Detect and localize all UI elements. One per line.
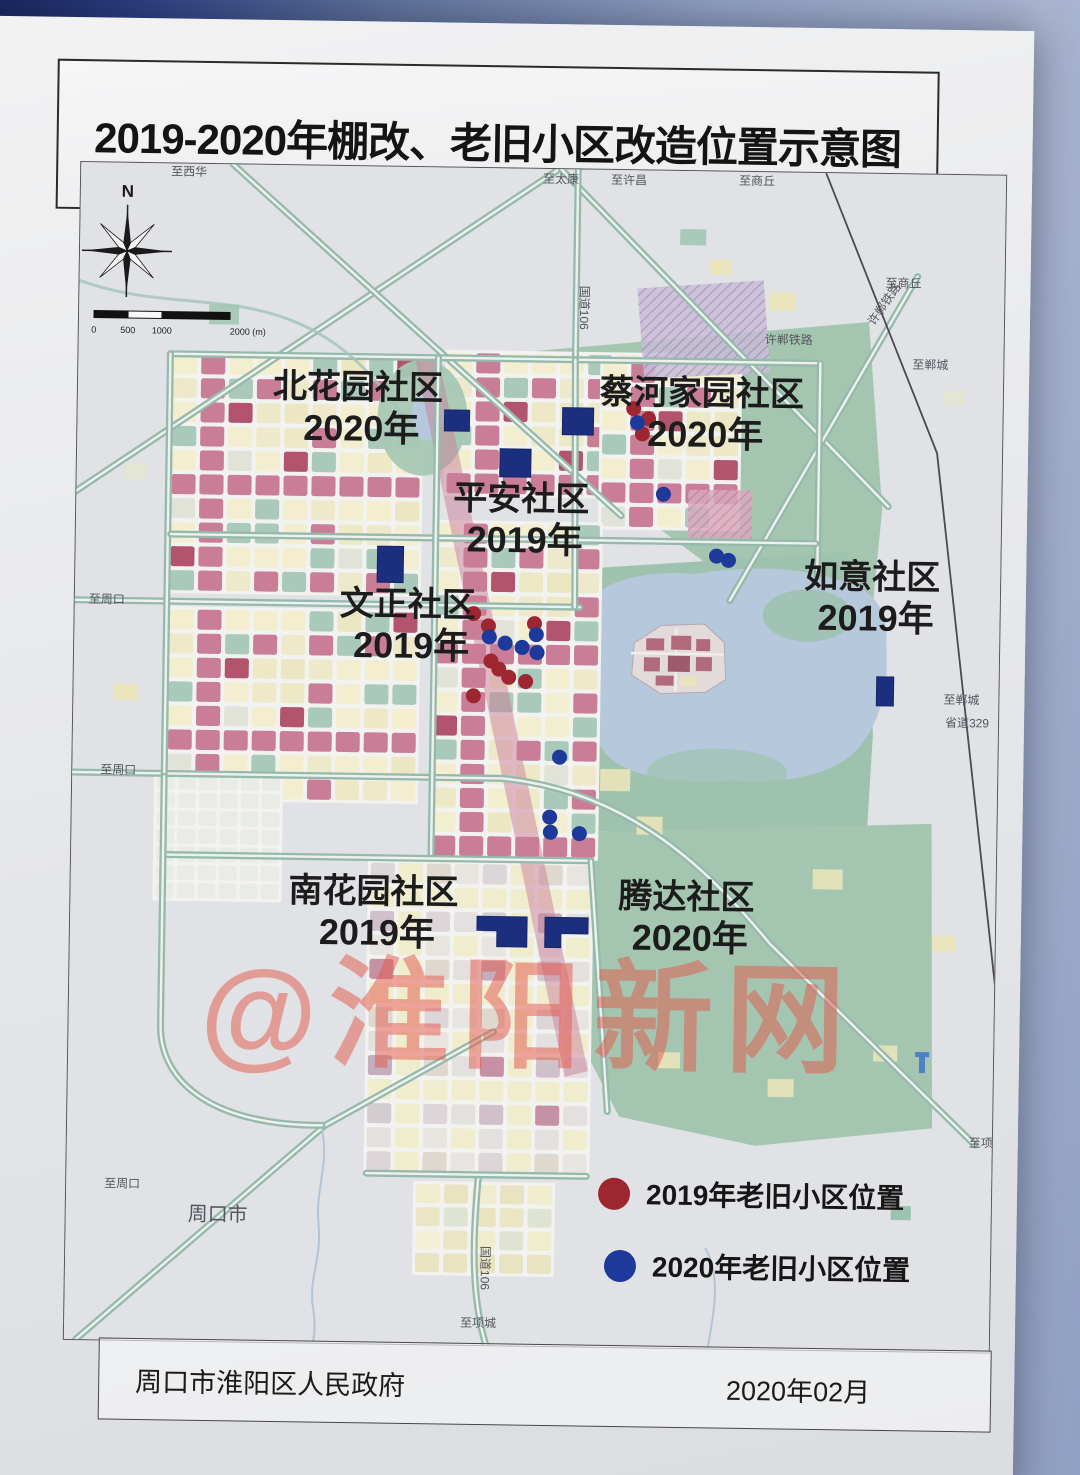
city-block bbox=[444, 1184, 468, 1203]
road-label: 至周口 bbox=[89, 592, 125, 607]
city-block bbox=[545, 693, 569, 713]
city-block bbox=[168, 729, 192, 749]
city-block bbox=[499, 1254, 523, 1273]
city-block bbox=[507, 1129, 531, 1149]
city-block bbox=[281, 635, 305, 655]
community-name: 腾达社区 bbox=[618, 877, 755, 917]
city-block bbox=[517, 692, 541, 712]
city-block bbox=[487, 836, 511, 856]
road-label: 至项城 bbox=[460, 1316, 496, 1331]
city-block bbox=[227, 499, 251, 519]
renovation-area bbox=[562, 408, 593, 436]
city-block bbox=[392, 733, 416, 753]
city-block bbox=[392, 709, 416, 729]
city-block bbox=[219, 829, 237, 844]
city-block bbox=[499, 1231, 523, 1250]
city-block bbox=[415, 1230, 439, 1249]
city-block bbox=[630, 459, 654, 479]
city-block bbox=[504, 378, 528, 398]
city-block bbox=[198, 546, 222, 566]
city-block bbox=[172, 450, 196, 470]
city-block bbox=[544, 765, 568, 785]
city-block bbox=[714, 460, 738, 480]
city-block bbox=[566, 890, 590, 910]
renovation-area bbox=[876, 677, 893, 706]
city-block bbox=[451, 1128, 475, 1148]
city-block bbox=[169, 657, 193, 677]
city-block bbox=[340, 452, 364, 472]
city-block bbox=[482, 888, 506, 908]
city-block bbox=[308, 707, 332, 727]
city-block bbox=[309, 659, 333, 679]
city-block bbox=[546, 645, 570, 665]
city-block bbox=[479, 1105, 503, 1125]
renovation-area bbox=[444, 410, 469, 431]
city-block bbox=[527, 1255, 551, 1274]
community-year: 2019年 bbox=[466, 518, 583, 561]
city-block bbox=[491, 572, 515, 592]
city-block bbox=[226, 571, 250, 591]
community-year: 2019年 bbox=[353, 624, 470, 667]
city-block bbox=[572, 765, 596, 785]
city-block bbox=[528, 1186, 552, 1205]
city-block bbox=[225, 610, 249, 630]
city-block bbox=[262, 794, 280, 809]
city-block bbox=[363, 780, 387, 800]
scale-tick: 1000 bbox=[152, 325, 172, 335]
city-block bbox=[478, 1153, 502, 1173]
city-block bbox=[567, 866, 591, 886]
city-block bbox=[280, 707, 304, 727]
city-block bbox=[339, 500, 363, 520]
scale-segment bbox=[128, 311, 162, 319]
road-label: 至郸城 bbox=[912, 358, 948, 373]
city-block bbox=[254, 571, 278, 591]
city-block bbox=[177, 811, 195, 826]
city-block bbox=[394, 1151, 418, 1171]
city-block bbox=[308, 683, 332, 703]
city-block bbox=[196, 730, 220, 750]
city-block bbox=[574, 621, 598, 641]
city-block bbox=[310, 548, 334, 568]
city-block bbox=[368, 453, 392, 473]
city-block bbox=[198, 811, 216, 826]
city-block bbox=[364, 708, 388, 728]
city-block bbox=[256, 403, 280, 423]
city-block bbox=[225, 658, 249, 678]
city-block bbox=[283, 476, 307, 496]
city-block bbox=[173, 378, 197, 398]
city-block bbox=[260, 884, 278, 899]
date-label: 2020年02月 bbox=[726, 1368, 871, 1409]
city-block bbox=[255, 475, 279, 495]
city-block bbox=[283, 500, 307, 520]
city-block bbox=[546, 669, 570, 689]
footer-box: 周口市淮阳区人民政府 2020年02月 bbox=[98, 1337, 992, 1432]
photo-background: 2019-2020年棚改、老旧小区改造位置示意图 bbox=[0, 0, 1080, 1475]
city-block bbox=[535, 1130, 559, 1150]
city-block bbox=[534, 1154, 558, 1174]
city-block bbox=[475, 449, 499, 469]
city-block bbox=[483, 864, 507, 884]
city-block bbox=[454, 912, 478, 932]
road-label: 至周口 bbox=[104, 1176, 140, 1191]
city-block bbox=[364, 732, 388, 752]
city-block bbox=[339, 476, 363, 496]
city-block bbox=[391, 781, 415, 801]
city-block bbox=[228, 403, 252, 423]
community-name: 蔡河家园社区 bbox=[599, 373, 804, 414]
city-block bbox=[519, 572, 543, 592]
city-block bbox=[198, 829, 216, 844]
city-block bbox=[367, 501, 391, 521]
road-label: 国道106 bbox=[577, 286, 592, 331]
city-block bbox=[261, 812, 279, 827]
road-label: 至太康 bbox=[543, 171, 579, 187]
city-block bbox=[657, 507, 681, 527]
city-block bbox=[171, 474, 195, 494]
city-block bbox=[309, 611, 333, 631]
city-block bbox=[451, 1104, 475, 1124]
city-block bbox=[240, 830, 258, 845]
scale-tick: 0 bbox=[91, 324, 96, 334]
city-block bbox=[571, 838, 595, 858]
city-block bbox=[177, 829, 195, 844]
city-block bbox=[574, 669, 598, 689]
city-block bbox=[224, 730, 248, 750]
city-block bbox=[475, 425, 499, 445]
city-block bbox=[170, 570, 194, 590]
city-block bbox=[198, 571, 222, 591]
city-block bbox=[197, 634, 221, 654]
city-block bbox=[200, 426, 224, 446]
city-block bbox=[196, 682, 220, 702]
city-block bbox=[531, 402, 555, 422]
city-block bbox=[629, 483, 653, 503]
city-block bbox=[479, 1129, 503, 1149]
community-name: 南花园社区 bbox=[288, 871, 458, 912]
city-block bbox=[443, 1253, 467, 1272]
city-block bbox=[507, 1105, 531, 1125]
city-block bbox=[443, 1230, 467, 1249]
city-block bbox=[336, 684, 360, 704]
city-block bbox=[196, 706, 220, 726]
city-block bbox=[546, 621, 570, 641]
city-block bbox=[532, 378, 556, 398]
road-label: 至许昌 bbox=[611, 173, 647, 188]
renovation-area bbox=[500, 449, 531, 478]
city-block bbox=[527, 1232, 551, 1251]
city-block bbox=[528, 1209, 552, 1228]
city-block bbox=[460, 740, 484, 760]
road-label: 省道329 bbox=[945, 716, 990, 731]
city-block bbox=[170, 546, 194, 566]
road-label: 至西华 bbox=[171, 164, 207, 179]
city-block bbox=[199, 498, 223, 518]
city-block bbox=[573, 693, 597, 713]
city-block bbox=[367, 1127, 391, 1147]
poster: 2019-2020年棚改、老旧小区改造位置示意图 bbox=[0, 15, 1034, 1475]
community-year: 2020年 bbox=[647, 413, 764, 456]
city-block bbox=[197, 658, 221, 678]
city-block bbox=[261, 866, 279, 881]
city-block bbox=[395, 1103, 419, 1123]
city-block bbox=[254, 547, 278, 567]
city-block bbox=[423, 1128, 447, 1148]
community-year: 2020年 bbox=[303, 407, 420, 450]
legend-label: 2019年老旧小区位置 bbox=[646, 1178, 905, 1214]
city-block bbox=[563, 1106, 587, 1126]
scale-segment bbox=[94, 310, 128, 318]
city-block bbox=[252, 707, 276, 727]
city-block bbox=[256, 427, 280, 447]
publisher-label: 周口市淮阳区人民政府 bbox=[135, 1359, 406, 1402]
city-block bbox=[459, 836, 483, 856]
city-block bbox=[572, 741, 596, 761]
city-block bbox=[281, 611, 305, 631]
city-block bbox=[547, 573, 571, 593]
city-block bbox=[224, 682, 248, 702]
city-block bbox=[220, 793, 238, 808]
city-block bbox=[253, 610, 277, 630]
city-block bbox=[256, 451, 280, 471]
scale-tick: 2000 (m) bbox=[230, 327, 266, 338]
city-block bbox=[395, 477, 419, 497]
community-name: 平安社区 bbox=[453, 479, 590, 519]
city-block bbox=[686, 460, 710, 480]
city-block bbox=[563, 1130, 587, 1150]
city-block bbox=[169, 609, 193, 629]
city-block bbox=[500, 1185, 524, 1204]
city-block bbox=[335, 780, 359, 800]
community-year: 2019年 bbox=[817, 597, 934, 640]
city-block bbox=[197, 883, 215, 898]
city-block bbox=[172, 426, 196, 446]
city-block bbox=[543, 837, 567, 857]
city-block bbox=[416, 1184, 440, 1203]
city-block bbox=[240, 866, 258, 881]
city-block bbox=[392, 685, 416, 705]
city-block bbox=[574, 645, 598, 665]
city-block bbox=[253, 634, 277, 654]
city-block bbox=[224, 706, 248, 726]
city-block bbox=[658, 459, 682, 479]
city-block bbox=[281, 659, 305, 679]
city-block bbox=[252, 731, 276, 751]
city-block bbox=[255, 499, 279, 519]
road-label: 至商丘 bbox=[739, 173, 775, 189]
city-block bbox=[280, 683, 304, 703]
road-label: 至周口 bbox=[100, 762, 136, 777]
city-block bbox=[226, 547, 250, 567]
city-block bbox=[367, 477, 391, 497]
city-block bbox=[395, 1127, 419, 1147]
city-block bbox=[168, 681, 192, 701]
city-block bbox=[602, 458, 626, 478]
city-block bbox=[284, 452, 308, 472]
watermark: @淮阳新网 bbox=[199, 945, 858, 1089]
compass-north-label: N bbox=[122, 182, 135, 201]
city-block bbox=[200, 450, 224, 470]
city-block bbox=[311, 500, 335, 520]
scale-tick: 500 bbox=[120, 325, 135, 335]
city-block bbox=[311, 476, 335, 496]
city-block bbox=[336, 708, 360, 728]
city-block bbox=[602, 434, 626, 454]
city-block bbox=[261, 830, 279, 845]
community-name: 北花园社区 bbox=[273, 367, 443, 408]
scale-segment bbox=[162, 312, 230, 320]
city-block bbox=[415, 1253, 439, 1272]
city-block bbox=[422, 1152, 446, 1172]
city-block bbox=[280, 731, 304, 751]
city-block bbox=[218, 883, 236, 898]
city-block bbox=[336, 732, 360, 752]
city-block bbox=[219, 865, 237, 880]
city-block bbox=[602, 410, 626, 430]
city-block bbox=[461, 716, 485, 736]
city-block bbox=[535, 1105, 559, 1125]
city-block bbox=[308, 731, 332, 751]
city-block bbox=[282, 548, 306, 568]
city-block bbox=[225, 634, 249, 654]
city-block bbox=[562, 1154, 586, 1174]
city-block bbox=[219, 811, 237, 826]
city-block bbox=[459, 812, 483, 832]
city-block bbox=[444, 1207, 468, 1226]
city-block bbox=[575, 573, 599, 593]
city-block bbox=[367, 1103, 391, 1123]
city-block bbox=[240, 812, 258, 827]
city-block bbox=[395, 501, 419, 521]
city-block bbox=[228, 427, 252, 447]
city-block bbox=[500, 1208, 524, 1227]
city-block bbox=[487, 812, 511, 832]
road-label: 许郸铁路 bbox=[765, 331, 813, 347]
renovation-area bbox=[377, 546, 404, 582]
city-block bbox=[239, 884, 257, 899]
city-block bbox=[171, 498, 195, 518]
city-block bbox=[227, 475, 251, 495]
city-block bbox=[253, 658, 277, 678]
city-block bbox=[307, 780, 331, 800]
city-block bbox=[169, 633, 193, 653]
city-block bbox=[252, 683, 276, 703]
road-label: 至项城 bbox=[969, 1136, 1005, 1151]
community-name: 文正社区 bbox=[339, 585, 476, 625]
city-block bbox=[423, 1104, 447, 1124]
city-block bbox=[282, 572, 306, 592]
city-block bbox=[364, 684, 388, 704]
city-block bbox=[629, 507, 653, 527]
city-block bbox=[460, 788, 484, 808]
city-block bbox=[450, 1152, 474, 1172]
city-block bbox=[197, 610, 221, 630]
city-block bbox=[176, 883, 194, 898]
city-block bbox=[545, 717, 569, 737]
city-block bbox=[517, 716, 541, 736]
city-block bbox=[312, 452, 336, 472]
city-block bbox=[199, 793, 217, 808]
city-block bbox=[416, 1207, 440, 1226]
community-name: 如意社区 bbox=[804, 557, 941, 597]
city-block bbox=[198, 865, 216, 880]
road-label: 至郸城 bbox=[943, 693, 979, 708]
legend-label: 2020年老旧小区位置 bbox=[652, 1250, 911, 1286]
road-label: 周口市 bbox=[188, 1203, 248, 1227]
city-block bbox=[177, 865, 195, 880]
city-block bbox=[506, 1153, 530, 1173]
city-block bbox=[228, 451, 252, 471]
city-block bbox=[241, 794, 259, 809]
city-map: 至西华至太康至许昌至商丘至商丘许郸铁路至郸城国道106许郸铁路至郸城省道329至… bbox=[64, 162, 1006, 1353]
city-block bbox=[366, 1151, 390, 1171]
city-block bbox=[573, 717, 597, 737]
city-block bbox=[199, 474, 223, 494]
city-block bbox=[338, 549, 362, 569]
road-label: 国道106 bbox=[478, 1246, 493, 1291]
map-frame: 至西华至太康至许昌至商丘至商丘许郸铁路至郸城国道106许郸铁路至郸城省道329至… bbox=[63, 161, 1007, 1354]
city-block bbox=[168, 705, 192, 725]
city-block bbox=[310, 572, 334, 592]
city-block bbox=[309, 635, 333, 655]
city-block bbox=[178, 793, 196, 808]
